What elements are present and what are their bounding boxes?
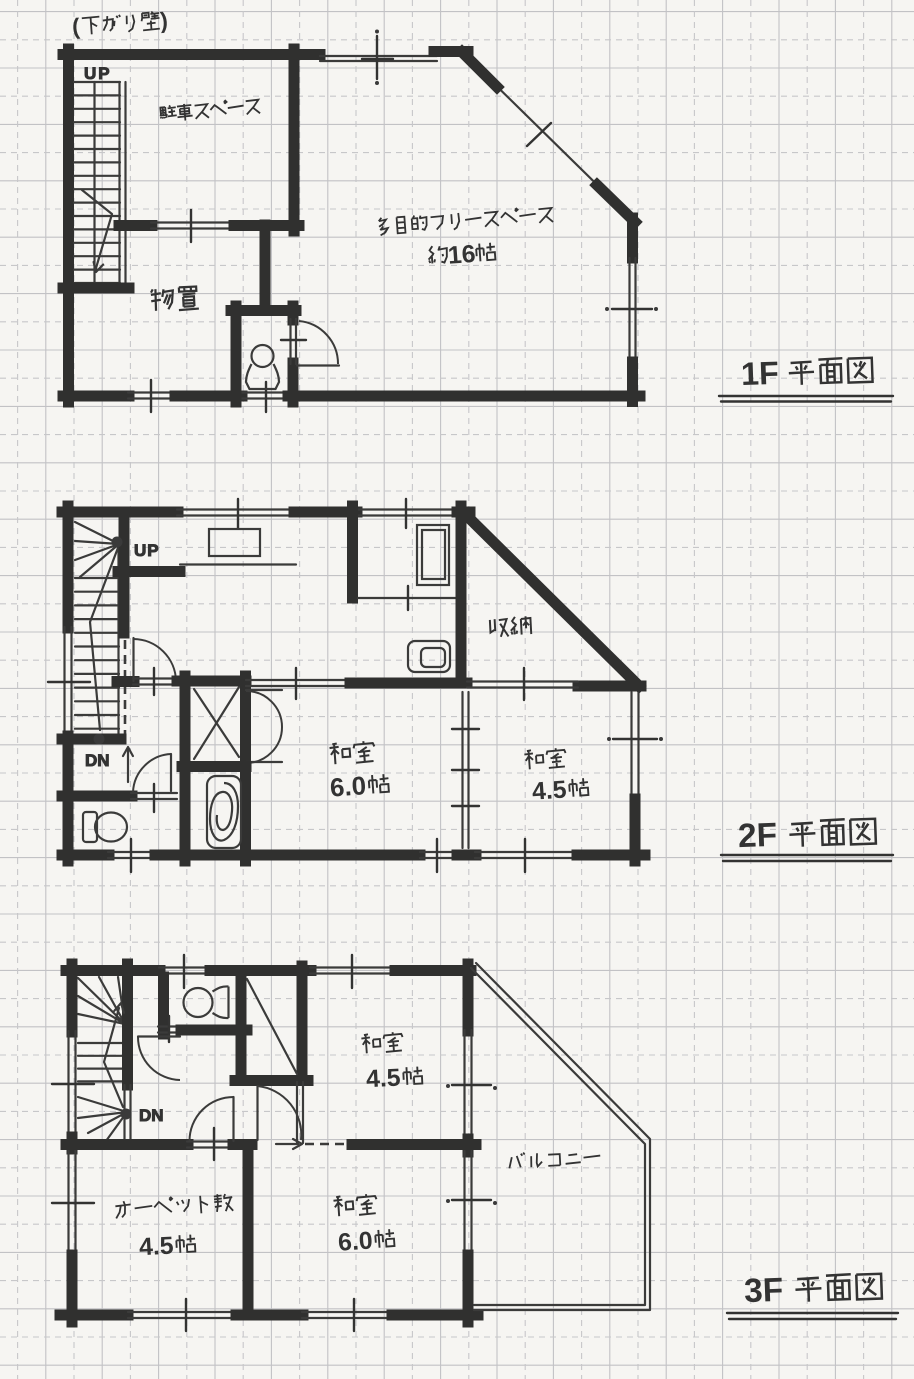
svg-text:6.0: 6.0 xyxy=(337,1227,373,1256)
svg-text:UP: UP xyxy=(134,541,160,560)
svg-text:UP: UP xyxy=(84,64,112,83)
svg-text:DN: DN xyxy=(85,751,110,770)
svg-text:4.5: 4.5 xyxy=(531,776,567,805)
svg-text:4.5: 4.5 xyxy=(365,1065,401,1094)
svg-text:3F: 3F xyxy=(743,1272,783,1310)
svg-text:DN: DN xyxy=(139,1106,164,1125)
svg-text:1F: 1F xyxy=(740,355,779,392)
svg-text:16: 16 xyxy=(447,241,476,270)
svg-text:2F: 2F xyxy=(737,817,777,855)
svg-text:6.0: 6.0 xyxy=(329,772,367,802)
svg-text:4.5: 4.5 xyxy=(138,1233,174,1262)
